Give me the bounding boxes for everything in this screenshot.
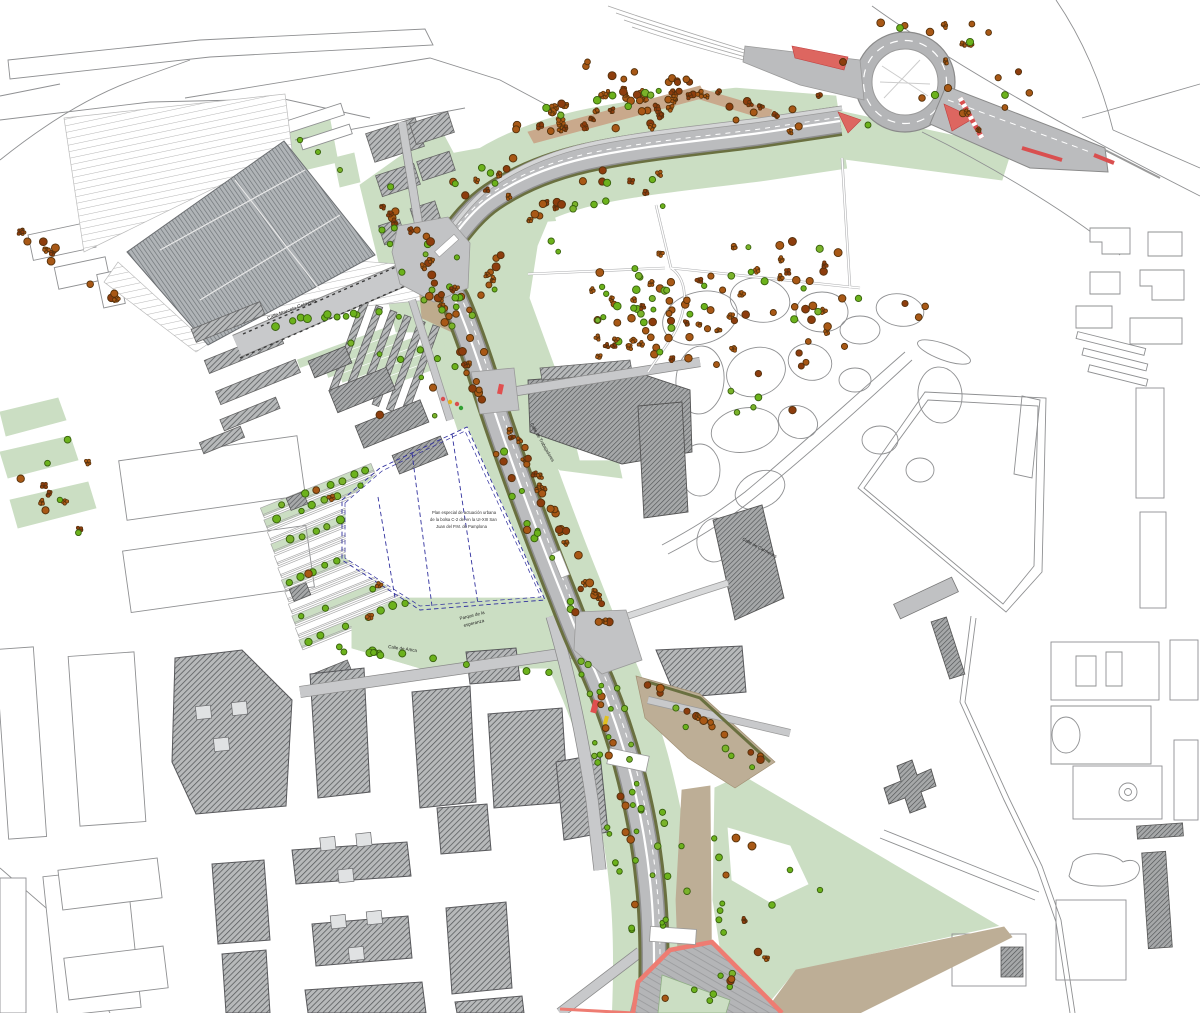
svg-text:de la bolsa C-2 del en la UI-X: de la bolsa C-2 del en la UI-XIII San bbox=[430, 517, 497, 522]
svg-text:Juan del P.M. de Pamplona: Juan del P.M. de Pamplona bbox=[436, 524, 488, 529]
svg-text:Plan especial de actuación urb: Plan especial de actuación urbana bbox=[432, 510, 497, 515]
